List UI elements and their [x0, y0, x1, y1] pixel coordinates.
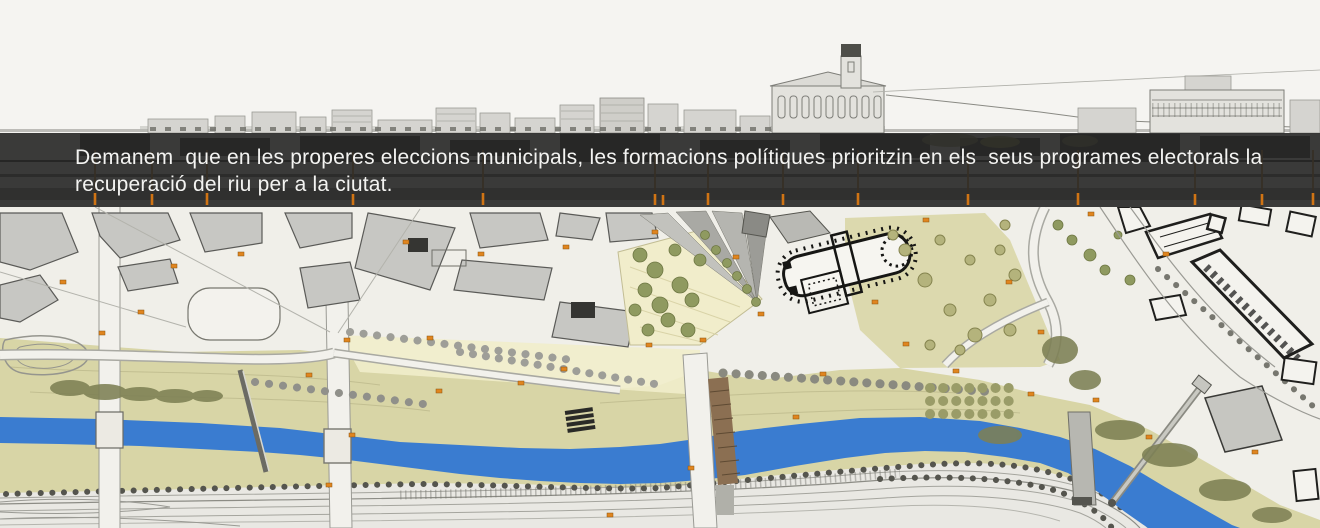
tower-cap	[841, 44, 861, 57]
site-plan	[0, 207, 1320, 528]
orange-tick-marks	[0, 186, 1320, 208]
banner-text-line-1: Demanem que en les properes eleccions mu…	[75, 144, 1320, 171]
oval-court	[188, 288, 280, 340]
poster: Demanem que en les properes eleccions mu…	[0, 0, 1320, 528]
